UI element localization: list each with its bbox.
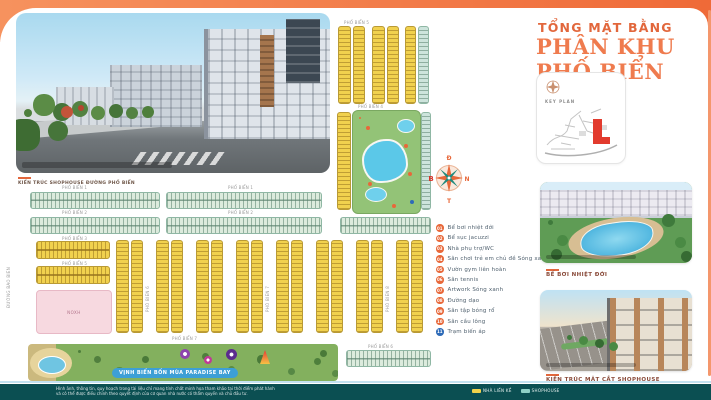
hero-caption-dash xyxy=(18,177,31,179)
legend-number: 10 xyxy=(436,318,444,326)
bottom-blue-line xyxy=(0,381,711,383)
street-label: PHỐ BIỂN 6 xyxy=(368,344,393,349)
footer-legend-item: SHOPHOUSE xyxy=(521,388,560,393)
lot-row xyxy=(36,266,110,284)
street-label: PHỐ BIỂN 7 xyxy=(172,336,197,341)
beach-park-render: VỊNH BIỂN BỐN MÙA PARADISE BAY xyxy=(28,344,338,381)
beach-pool xyxy=(38,356,66,374)
social-housing-block: NOXH xyxy=(36,290,112,334)
lot-strip xyxy=(337,112,351,210)
keyplan-map xyxy=(541,105,621,159)
lot-row xyxy=(30,192,160,209)
footer-legend: NHÀ LIỀN KỀ SHOPHOUSE xyxy=(472,388,560,393)
shophouse-label: SHOPHOUSE xyxy=(532,388,560,393)
street-label: PHỐ BIỂN 7 xyxy=(265,252,270,312)
legend-number: 07 xyxy=(436,287,444,295)
lot-row xyxy=(166,217,322,234)
legend-item: 01Bể bơi nhiệt đới xyxy=(436,224,549,232)
tropical-pool xyxy=(362,139,408,183)
legend-label: Đường dạo xyxy=(448,298,480,304)
compass-east: Đ xyxy=(446,155,451,162)
jacuzzi-pool xyxy=(397,119,415,133)
lot-column-group xyxy=(405,26,429,104)
keyplan-label: KEY PLAN xyxy=(545,99,575,104)
legend-number: 08 xyxy=(436,297,444,305)
beach-trees xyxy=(78,350,81,353)
compass-south: N xyxy=(464,176,469,183)
street-label: PHỐ BIỂN 1 xyxy=(62,185,87,190)
legend-number: 09 xyxy=(436,307,444,315)
amenity-markers xyxy=(359,117,361,119)
lot-column-group xyxy=(196,240,223,333)
lot-row xyxy=(346,350,431,367)
legend-label: Artwork Sóng xanh xyxy=(448,287,504,293)
legend-label: Sân tập bóng rổ xyxy=(448,308,495,314)
street-label: PHỐ BIỂN 4 xyxy=(358,104,383,109)
legend-number: 04 xyxy=(436,255,444,263)
lot-column-group xyxy=(396,240,423,333)
legend-item: 08Đường dạo xyxy=(436,297,549,305)
kids-pool xyxy=(365,187,387,202)
artwork-tower-icon xyxy=(260,350,270,364)
lot-column-group xyxy=(276,240,303,333)
keyplan-highlight xyxy=(593,119,610,144)
pool-photo xyxy=(540,182,692,263)
footer-disclaimer: Hình ảnh, thông tin, quy hoạch trong tài… xyxy=(56,386,275,396)
hero-building-far xyxy=(110,65,202,127)
lot-column-group xyxy=(356,240,383,333)
amenity-legend: 01Bể bơi nhiệt đới 02Bể sục jacuzzi 03Nh… xyxy=(436,224,549,338)
compass-rose: Đ B N T xyxy=(427,150,471,206)
footer-legend-item: NHÀ LIỀN KỀ xyxy=(472,388,512,393)
side-street-label: ĐƯỜNG BAO BIỂN xyxy=(6,238,11,308)
artwork-spiral-icon xyxy=(226,349,237,360)
legend-item: 03Nhà phụ trợ/WC xyxy=(436,245,549,253)
lot-column-group xyxy=(316,240,343,333)
legend-item: 07Artwork Sóng xanh xyxy=(436,286,549,294)
street-label: PHỐ BIỂN 2 xyxy=(62,210,87,215)
legend-label: Vườn gym liên hoàn xyxy=(448,267,507,273)
street-label: PHỐ BIỂN 5 xyxy=(344,20,369,25)
keyplan-compass-icon xyxy=(545,79,561,95)
townhouse-label: NHÀ LIỀN KỀ xyxy=(483,388,512,393)
compass-west: T xyxy=(447,198,452,205)
lot-column-group xyxy=(338,26,365,104)
caption-dash xyxy=(546,269,559,271)
legend-label: Bể bơi nhiệt đới xyxy=(448,225,494,231)
legend-number: 01 xyxy=(436,224,444,232)
legend-label: Sân tennis xyxy=(448,277,479,283)
keyplan-card: KEY PLAN xyxy=(536,72,626,164)
legend-number: 05 xyxy=(436,266,444,274)
hero-building-wood-accent xyxy=(260,35,274,107)
legend-item: 11Trạm biến áp xyxy=(436,328,549,336)
legend-item: 05Vườn gym liên hoàn xyxy=(436,266,549,274)
shophouse-photo-buildings xyxy=(607,298,692,371)
lot-column-group xyxy=(372,26,399,104)
artwork-wheel-icon xyxy=(180,349,190,359)
pool-photo-trees xyxy=(548,220,553,225)
hero-building-dark-accent xyxy=(286,19,320,83)
legend-label: Trạm biến áp xyxy=(448,329,486,335)
legend-number: 02 xyxy=(436,235,444,243)
lot-row xyxy=(340,217,431,234)
legend-label: Bể sục jacuzzi xyxy=(448,235,490,241)
shophouse-photo xyxy=(540,290,692,371)
shophouse-swatch xyxy=(521,389,530,393)
legend-number: 03 xyxy=(436,245,444,253)
lot-column-group xyxy=(156,240,183,333)
legend-item: 10Sân cầu lông xyxy=(436,318,549,326)
street-label: PHỐ BIỂN 8 xyxy=(385,252,390,312)
legend-number: 11 xyxy=(436,328,444,336)
hero-building-farther xyxy=(56,87,114,125)
townhouse-swatch xyxy=(472,389,481,393)
legend-item: 09Sân tập bóng rổ xyxy=(436,307,549,315)
hero-red-tree xyxy=(78,105,84,111)
legend-number: 06 xyxy=(436,276,444,284)
shophouse-photo-watermark xyxy=(546,363,636,367)
hero-trees xyxy=(24,109,32,117)
masterplan-page: KIẾN TRÚC SHOPHOUSE ĐƯỜNG PHỐ BIỂN PHỐ B… xyxy=(0,0,711,400)
lot-column-group xyxy=(236,240,263,333)
disclaimer-line-2: và có thể được điều chỉnh theo quyết địn… xyxy=(56,391,275,396)
lot-row xyxy=(36,241,110,259)
legend-item: 06Sân tennis xyxy=(436,276,549,284)
legend-item: 04Sân chơi trẻ em chủ đề Sóng xanh xyxy=(436,255,549,263)
compass-north: B xyxy=(428,175,433,183)
bay-label: VỊNH BIỂN BỐN MÙA PARADISE BAY xyxy=(112,368,238,378)
pool-photo-watermark xyxy=(546,255,636,259)
street-label: PHỐ BIỂN 2 xyxy=(228,210,253,215)
lot-row xyxy=(166,192,322,209)
page-subtitle: TỔNG MẶT BẰNG xyxy=(538,20,673,35)
pool-photo-caption: BỂ BƠI NHIỆT ĐỚI xyxy=(546,272,607,278)
lot-row xyxy=(30,217,160,234)
caption-dash xyxy=(546,374,559,376)
lot-column-group xyxy=(116,240,143,333)
legend-label: Nhà phụ trợ/WC xyxy=(448,246,495,252)
legend-item: 02Bể sục jacuzzi xyxy=(436,234,549,242)
legend-label: Sân cầu lông xyxy=(448,319,486,325)
street-label: PHỐ BIỂN 6 xyxy=(145,252,150,312)
legend-label: Sân chơi trẻ em chủ đề Sóng xanh xyxy=(448,256,549,262)
street-label: PHỐ BIỂN 1 xyxy=(228,185,253,190)
hero-render xyxy=(16,13,330,173)
hero-watermark xyxy=(22,162,172,168)
amenity-park xyxy=(352,110,421,214)
artwork-circle-icon xyxy=(204,356,212,364)
pool-photo-buildings xyxy=(540,190,692,218)
